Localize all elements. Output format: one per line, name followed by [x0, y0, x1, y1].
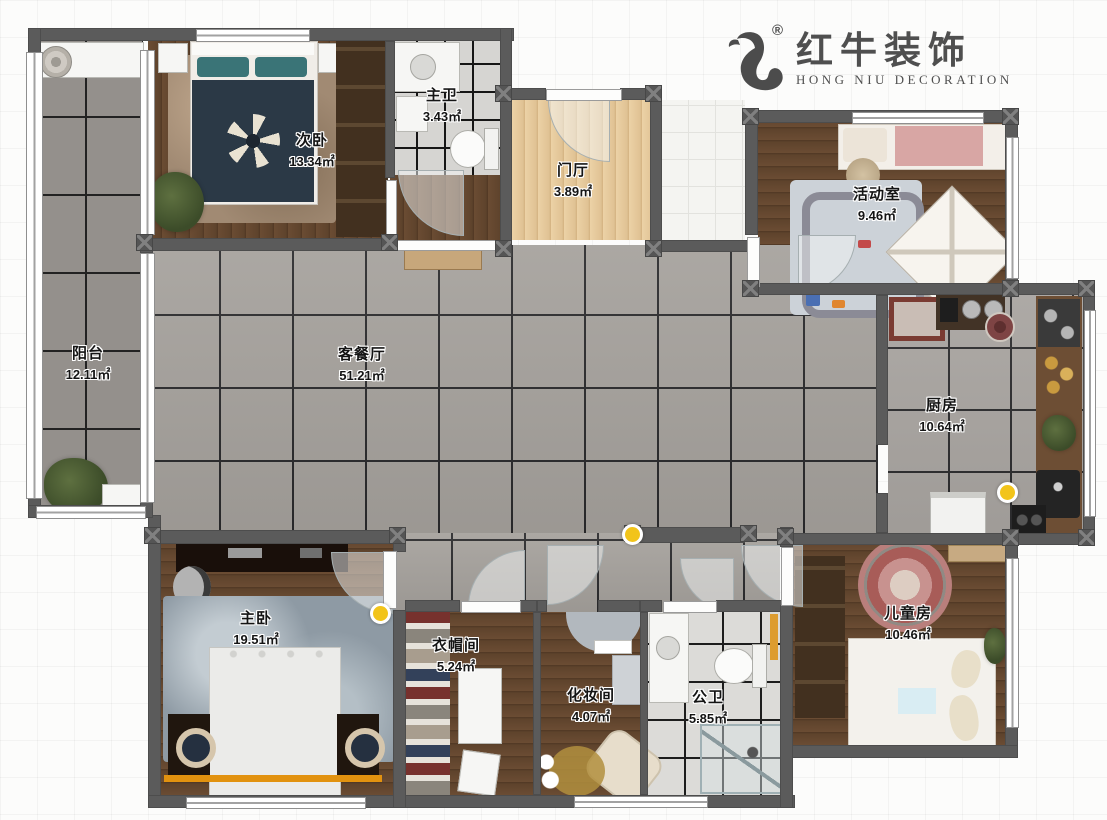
wall: [745, 110, 758, 235]
roam-point-marker[interactable]: [370, 603, 391, 624]
daybed-blanket: [895, 126, 983, 166]
entry-strip-floor: [662, 100, 745, 240]
dishwasher: [930, 492, 986, 537]
room-label-second-bedroom: 次卧 13.34㎡: [289, 133, 335, 168]
cloakroom-cabinet: [458, 668, 502, 744]
wall: [393, 610, 406, 808]
wall-joint: [1078, 529, 1095, 546]
wall: [650, 240, 758, 252]
desk-item: [300, 548, 322, 558]
wall-joint: [136, 234, 153, 251]
window: [1006, 558, 1019, 728]
room-label-public-bathroom: 公卫 5.85㎡: [689, 690, 727, 725]
wall-joint: [1078, 280, 1095, 297]
wall-joint: [495, 85, 512, 102]
room-label-kitchen: 厨房 10.64㎡: [919, 398, 965, 433]
wall: [640, 600, 662, 612]
window: [852, 112, 984, 124]
wardrobe: [336, 41, 388, 237]
window: [140, 50, 155, 235]
wall: [876, 295, 888, 445]
door-panel: [386, 180, 397, 236]
wall: [148, 515, 161, 808]
room-label-activity-room: 活动室 9.46㎡: [853, 187, 901, 222]
wall: [148, 238, 398, 251]
wall-joint: [740, 525, 757, 542]
roam-point-marker[interactable]: [997, 482, 1018, 503]
window: [186, 797, 366, 809]
wall: [537, 600, 547, 612]
wall: [876, 493, 888, 533]
dishes: [1040, 352, 1078, 396]
room-label-master-bathroom: 主卫 3.43㎡: [423, 88, 461, 123]
nightstand: [158, 43, 188, 73]
wall: [533, 612, 541, 795]
pillow: [197, 57, 249, 77]
pan: [962, 300, 981, 319]
wall-joint: [742, 108, 759, 125]
wall: [520, 600, 537, 612]
door-panel: [781, 547, 794, 606]
door-panel: [383, 551, 397, 609]
roam-point-marker[interactable]: [622, 524, 643, 545]
wall: [405, 600, 460, 612]
sink: [656, 636, 680, 660]
wall-joint: [389, 527, 406, 544]
wall-joint: [1002, 529, 1019, 546]
wall: [500, 28, 512, 252]
wall: [745, 283, 1095, 295]
entry-door-panel: [546, 89, 622, 101]
monitor: [228, 548, 262, 558]
laundry-basket: [457, 750, 500, 797]
room-label-living-dining: 客餐厅 51.21㎡: [338, 347, 386, 382]
headboard: [192, 43, 314, 55]
wall: [148, 530, 393, 544]
wall-joint: [645, 240, 662, 257]
kitchen-plant: [1042, 415, 1076, 451]
threshold: [392, 240, 500, 251]
room-label-kids-room: 儿童房 10.46㎡: [884, 606, 932, 641]
shelf: [594, 640, 632, 654]
wash-basin: [40, 46, 72, 78]
wall: [790, 745, 1018, 758]
bull-logo-icon: [726, 30, 790, 101]
wall-joint: [381, 234, 398, 251]
wall-joint: [742, 280, 759, 297]
balcony-floor: [30, 41, 143, 506]
coffee-machine: [940, 298, 958, 322]
window: [36, 506, 146, 519]
wall: [598, 600, 640, 612]
window: [1006, 137, 1019, 279]
wall-shelf: [948, 545, 1006, 562]
towel-rack: [770, 614, 778, 660]
threshold: [461, 601, 521, 613]
threshold: [663, 601, 717, 613]
wall-joint: [777, 528, 794, 545]
room-label-balcony: 阳台 12.11㎡: [66, 346, 111, 381]
brand-logo: ® 红牛装饰 HONG NIU DECORATION: [726, 24, 1026, 104]
bedroom-plant: [150, 172, 204, 232]
registered-mark: ®: [772, 22, 783, 39]
brand-subtitle: HONG NIU DECORATION: [796, 72, 1013, 88]
kids-plant: [984, 628, 1006, 664]
brand-name: 红牛装饰: [796, 32, 1013, 69]
room-label-cloakroom: 衣帽间 5.24㎡: [432, 638, 480, 673]
floorplan-canvas: 阳台 12.11㎡ 次卧 13.34㎡ 主卫 3.43㎡ 门厅 3.89㎡ 活动…: [0, 0, 1107, 820]
utensil-tray: [1038, 299, 1080, 347]
wall: [780, 605, 793, 808]
toilet-tank: [484, 128, 499, 170]
toilet-tank: [752, 644, 767, 688]
window: [1084, 310, 1096, 517]
fan-decoration: [226, 114, 280, 168]
wall: [385, 41, 395, 178]
wall-joint: [645, 85, 662, 102]
toy-car: [858, 240, 871, 248]
shower-area: [700, 724, 782, 794]
speaker: [176, 728, 216, 768]
wall: [640, 612, 648, 795]
toilet: [450, 130, 486, 168]
wall: [793, 533, 1005, 545]
wall-joint: [1002, 108, 1019, 125]
wall: [650, 88, 662, 252]
cooking-pot: [985, 312, 1015, 342]
headboard-light-strip: [164, 775, 382, 782]
bed-mat: [898, 688, 936, 714]
wall-joint: [495, 240, 512, 257]
wall: [716, 600, 782, 612]
wall: [628, 527, 745, 543]
desk-unit: [176, 542, 348, 572]
window: [26, 52, 43, 499]
room-label-master-bedroom: 主卧 19.51㎡: [233, 611, 279, 646]
room-label-foyer: 门厅 3.89㎡: [554, 163, 592, 198]
window: [574, 796, 708, 808]
toilet: [714, 648, 754, 684]
window: [196, 29, 310, 42]
sink: [410, 54, 436, 80]
daybed-pillow: [843, 128, 887, 162]
speaker: [345, 728, 385, 768]
pillow: [255, 57, 307, 77]
window: [140, 253, 155, 503]
wall-joint: [144, 527, 161, 544]
wall-joint: [1002, 280, 1019, 297]
room-label-makeup-room: 化妆间 4.07㎡: [567, 688, 615, 723]
toy-car: [832, 300, 845, 308]
